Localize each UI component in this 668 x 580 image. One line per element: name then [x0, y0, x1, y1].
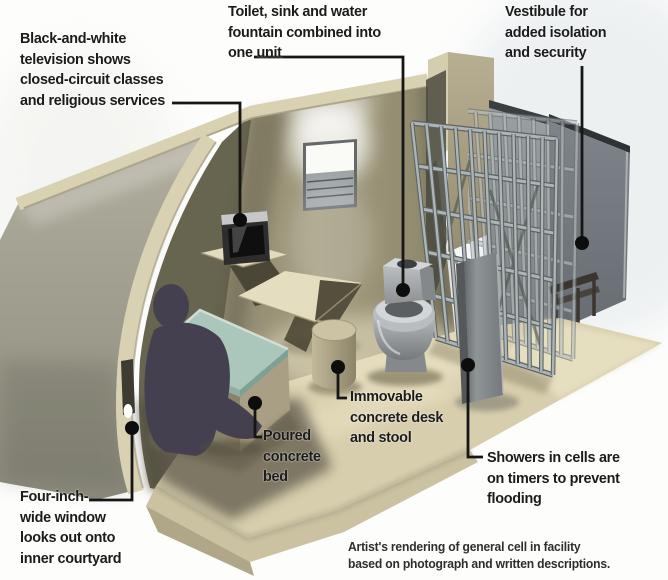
- label-window: Four-inch- wide window looks out onto in…: [20, 487, 121, 569]
- toilet-callout-dot: [396, 283, 410, 297]
- label-line: television shows: [20, 50, 165, 71]
- label-line: Four-inch-: [20, 487, 121, 508]
- label-line: looks out onto: [20, 528, 121, 549]
- label-line: wide window: [20, 508, 121, 529]
- shower-panel: [456, 252, 503, 404]
- label-line: Immovable: [350, 387, 443, 408]
- label-line: Toilet, sink and water: [228, 2, 381, 23]
- shower-callout-dot: [461, 358, 475, 372]
- label-toilet: Toilet, sink and water fountain combined…: [228, 2, 381, 64]
- label-line: inner courtyard: [20, 549, 121, 570]
- prison-cell-infographic: Black-and-white television shows closed-…: [0, 0, 668, 580]
- label-line: one unit: [228, 43, 381, 64]
- label-line: and stool: [350, 428, 443, 449]
- tv-callout-dot: [233, 213, 247, 227]
- label-line: Black-and-white: [20, 29, 165, 50]
- label-line: concrete: [263, 447, 321, 468]
- bed-callout-dot: [248, 396, 262, 410]
- caption-line: based on photograph and written descript…: [348, 556, 610, 573]
- label-line: Showers in cells are: [487, 448, 620, 469]
- stool: [312, 320, 356, 390]
- source-caption: Artist's rendering of general cell in fa…: [348, 539, 610, 573]
- label-line: and religious services: [20, 91, 165, 112]
- label-line: Poured: [263, 426, 321, 447]
- label-vestibule: Vestibule for added isolation and securi…: [505, 2, 606, 64]
- label-line: concrete desk: [350, 408, 443, 429]
- label-desk: Immovable concrete desk and stool: [350, 387, 443, 449]
- label-line: Vestibule for: [505, 2, 606, 23]
- label-line: flooding: [487, 489, 620, 510]
- label-bed: Poured concrete bed: [263, 426, 321, 488]
- desk-callout-dot: [331, 360, 345, 374]
- window-callout-dot: [125, 421, 139, 435]
- label-line: fountain combined into: [228, 23, 381, 44]
- label-line: and security: [505, 43, 606, 64]
- label-line: on timers to prevent: [487, 469, 620, 490]
- label-shower: Showers in cells are on timers to preven…: [487, 448, 620, 510]
- label-television: Black-and-white television shows closed-…: [20, 29, 165, 111]
- caption-line: Artist's rendering of general cell in fa…: [348, 539, 610, 556]
- label-line: closed-circuit classes: [20, 70, 165, 91]
- label-line: added isolation: [505, 23, 606, 44]
- vestibule-callout-dot: [575, 236, 589, 250]
- label-line: bed: [263, 467, 321, 488]
